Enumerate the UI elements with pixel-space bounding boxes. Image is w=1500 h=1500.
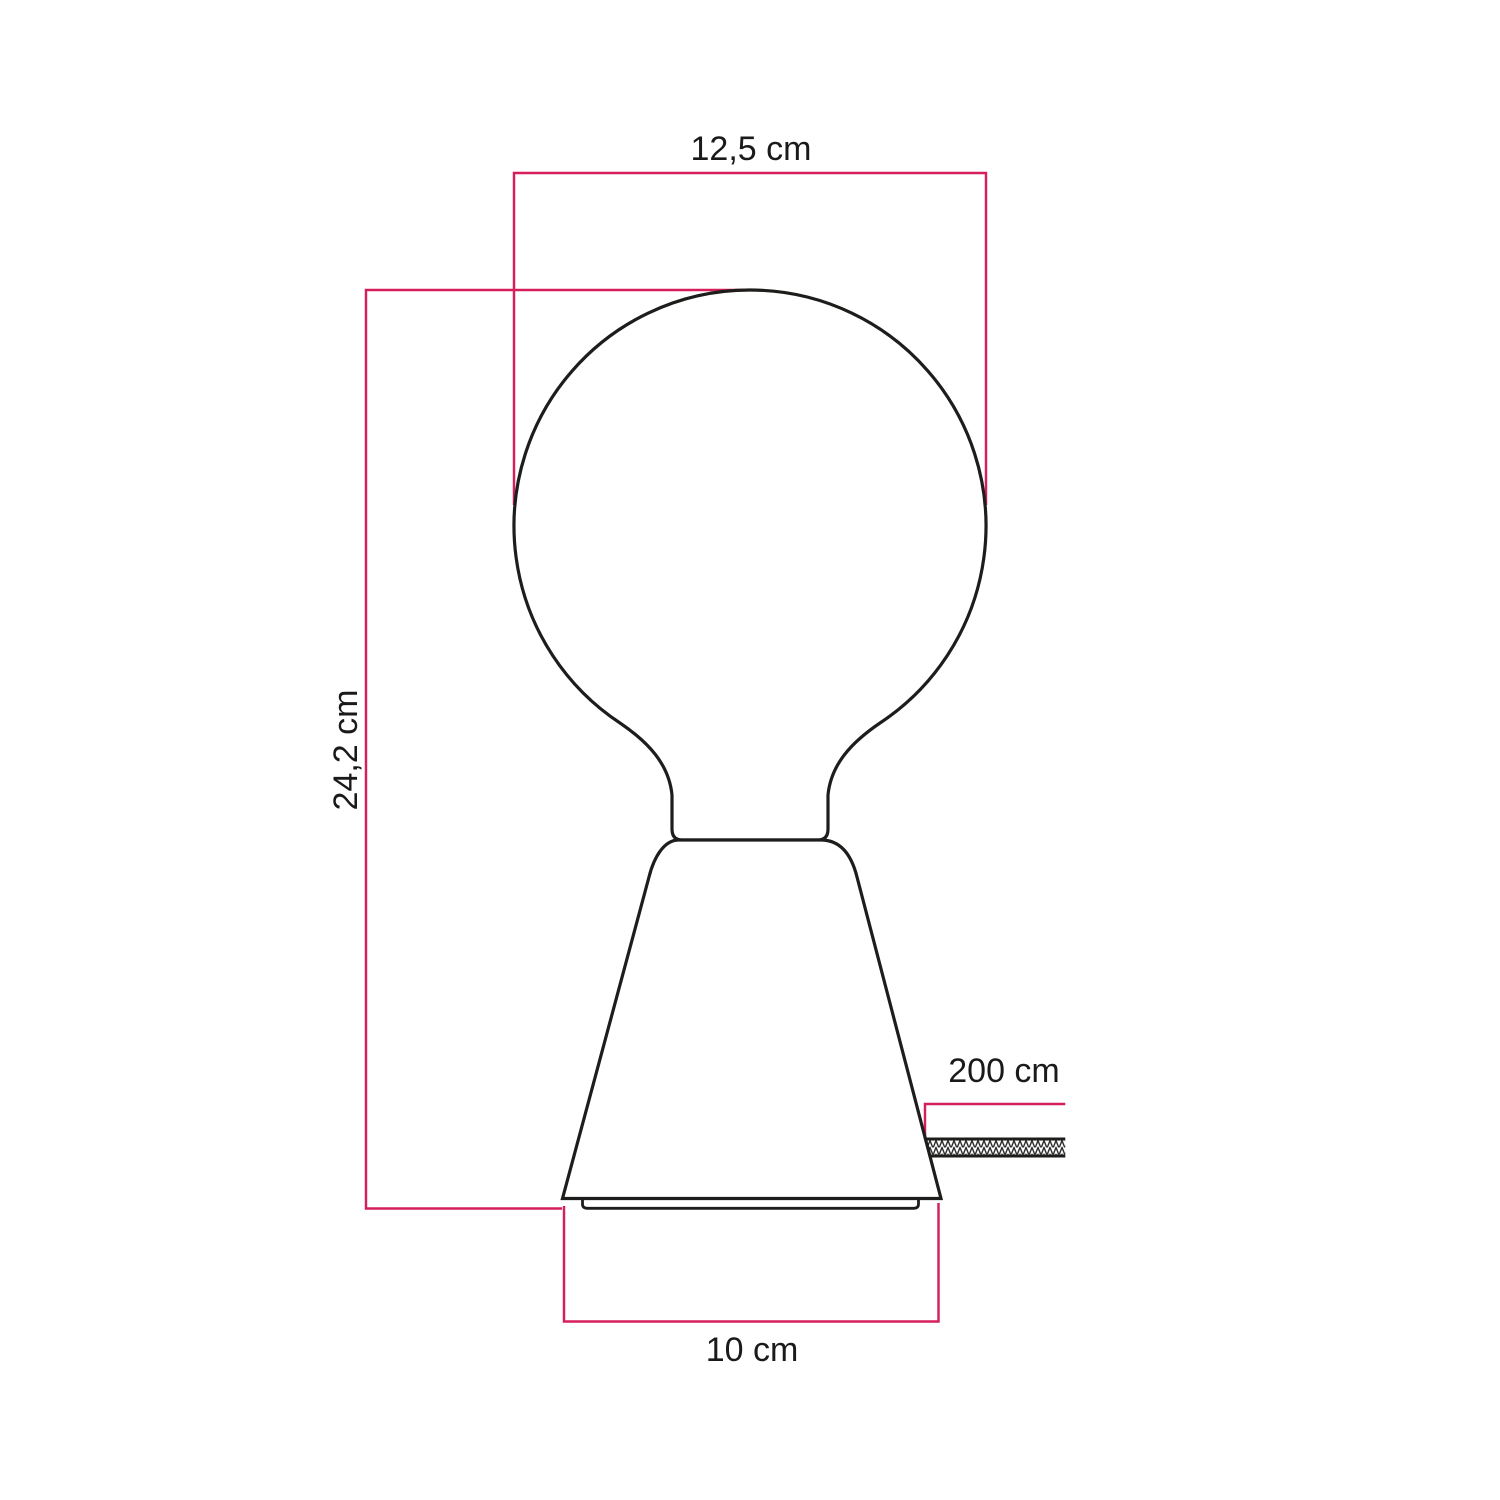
svg-text:200 cm: 200 cm bbox=[948, 1052, 1060, 1090]
svg-text:24,2 cm: 24,2 cm bbox=[327, 690, 365, 811]
svg-text:10 cm: 10 cm bbox=[706, 1331, 799, 1369]
svg-text:12,5 cm: 12,5 cm bbox=[691, 130, 812, 168]
